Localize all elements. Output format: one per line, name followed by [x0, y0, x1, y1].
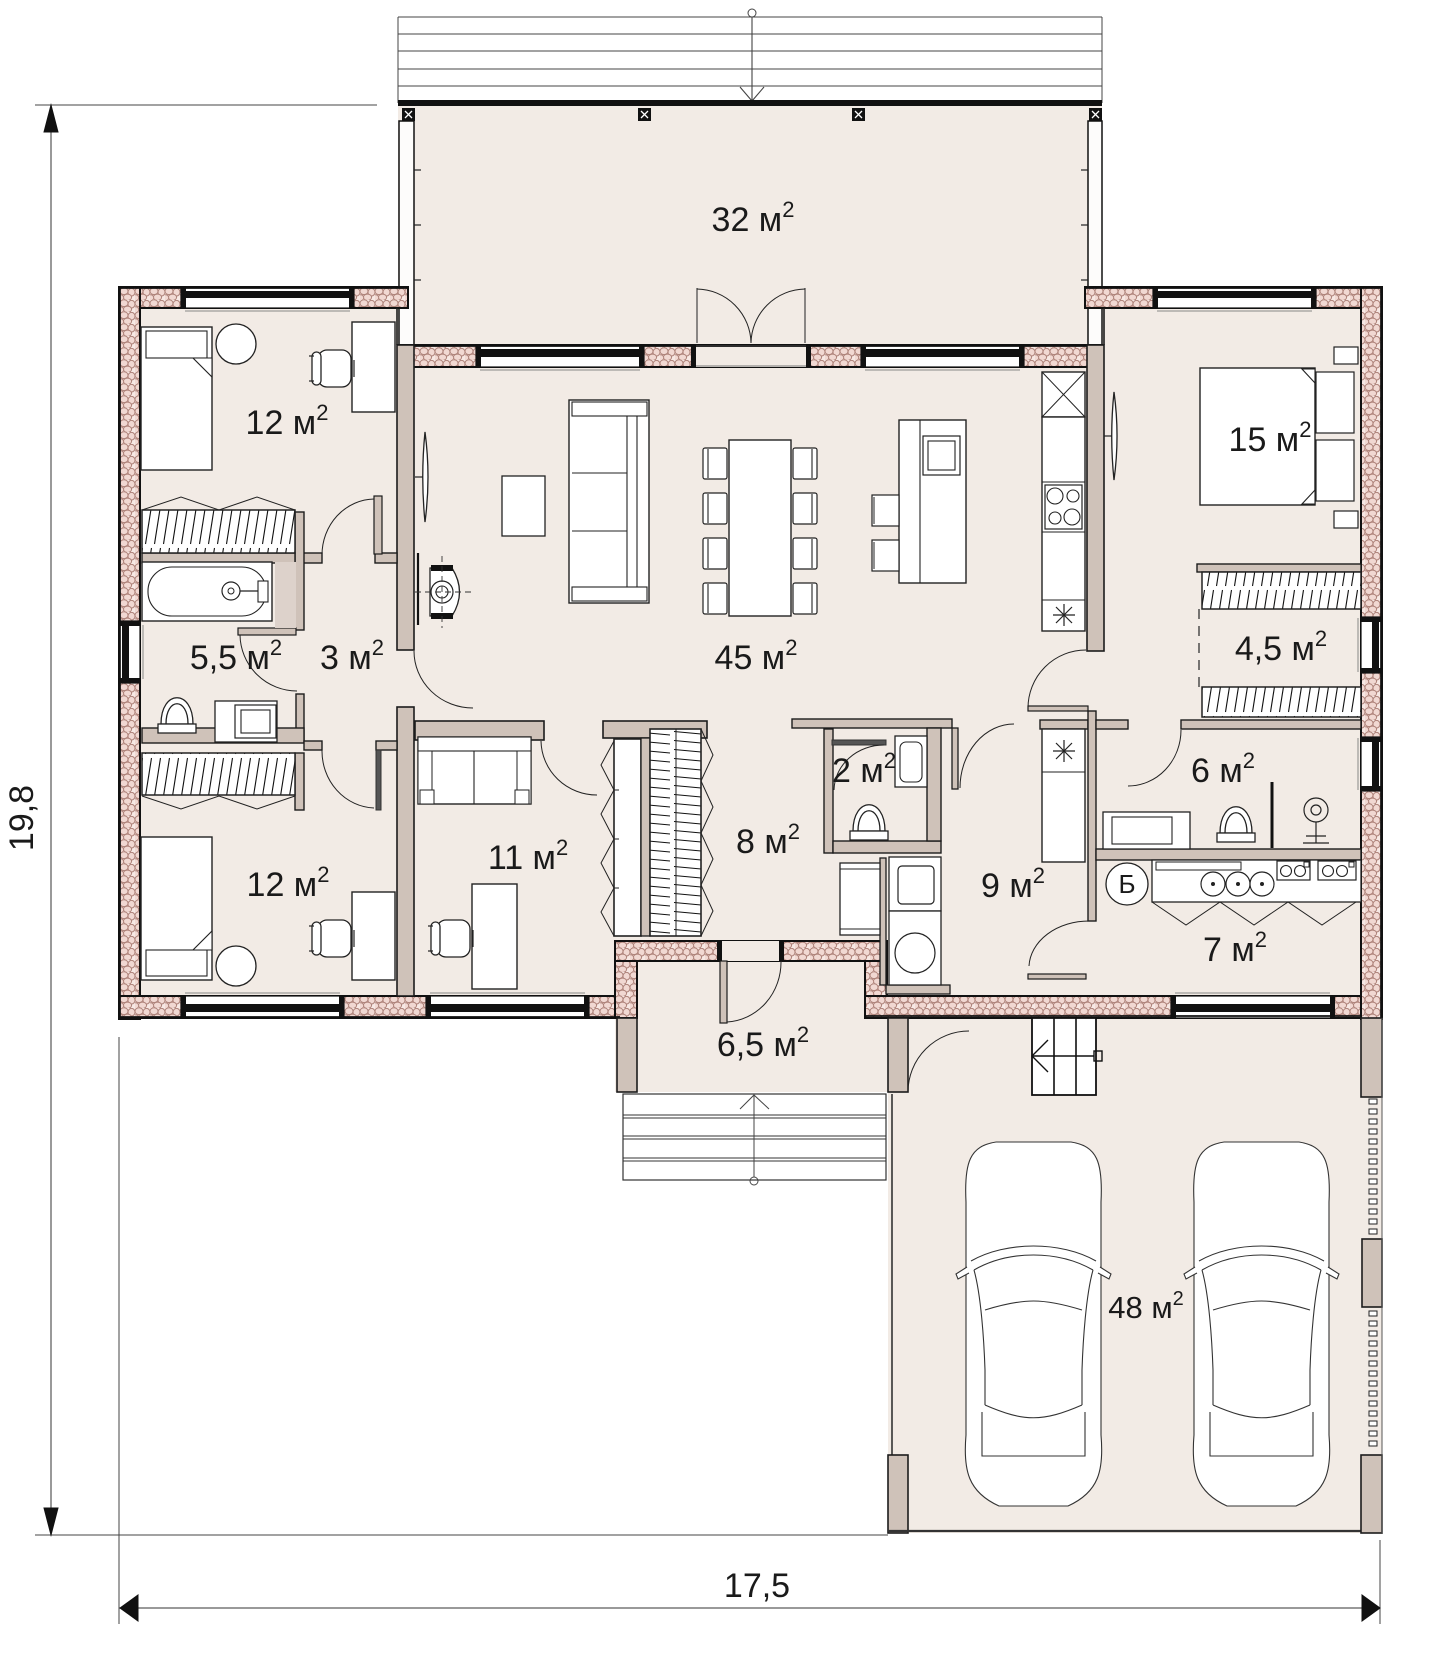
svg-text:48 м2: 48 м2 [1108, 1288, 1184, 1325]
svg-text:19,8: 19,8 [3, 785, 41, 851]
svg-text:17,5: 17,5 [724, 1567, 790, 1605]
svg-text:32 м2: 32 м2 [712, 197, 795, 239]
svg-text:15 м2: 15 м2 [1229, 417, 1312, 459]
svg-text:12 м2: 12 м2 [246, 400, 329, 442]
svg-text:6,5 м2: 6,5 м2 [717, 1022, 809, 1064]
svg-text:12 м2: 12 м2 [247, 862, 330, 904]
svg-text:45 м2: 45 м2 [715, 635, 798, 677]
svg-text:4,5 м2: 4,5 м2 [1235, 626, 1327, 668]
svg-text:Б: Б [1118, 869, 1135, 899]
svg-text:5,5 м2: 5,5 м2 [190, 635, 282, 677]
